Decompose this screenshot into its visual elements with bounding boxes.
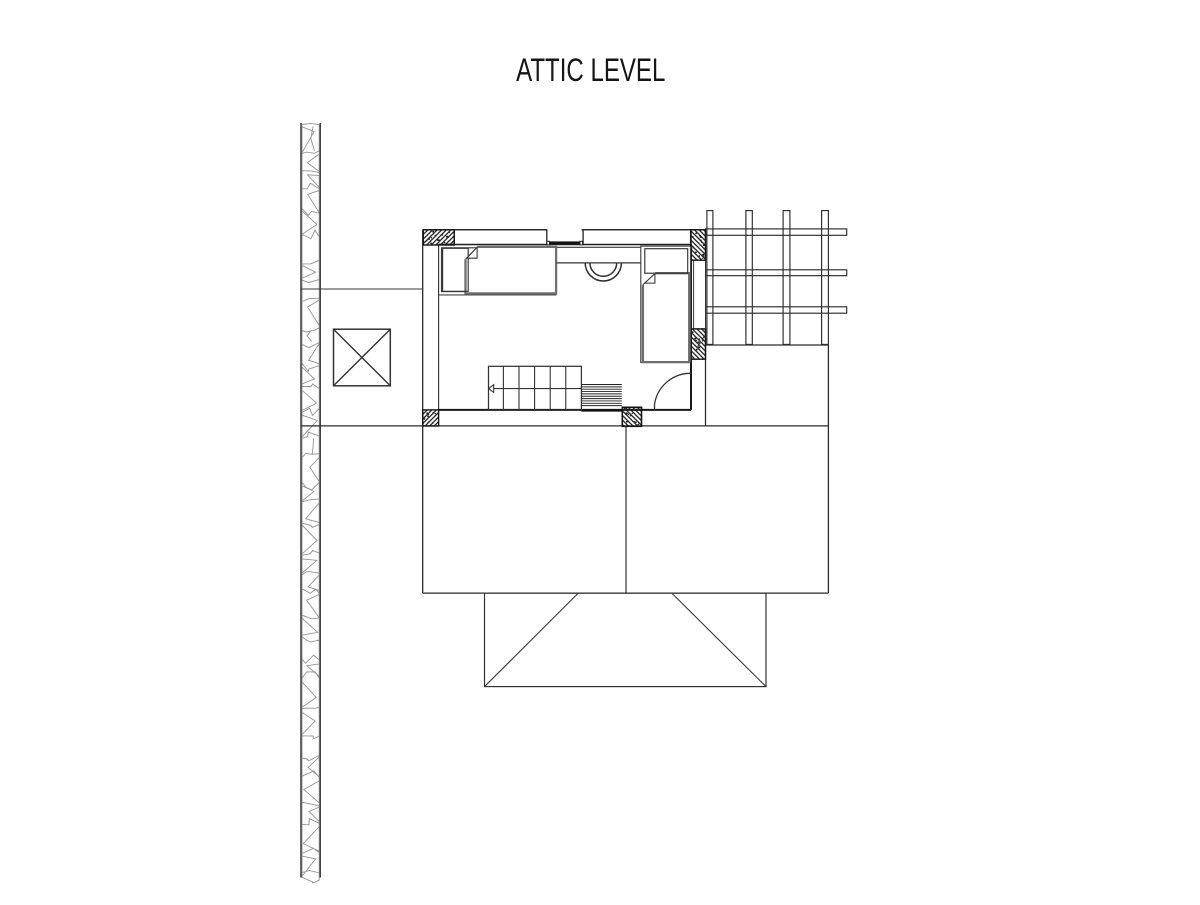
svg-text:ATTIC LEVEL: ATTIC LEVEL	[516, 52, 665, 88]
